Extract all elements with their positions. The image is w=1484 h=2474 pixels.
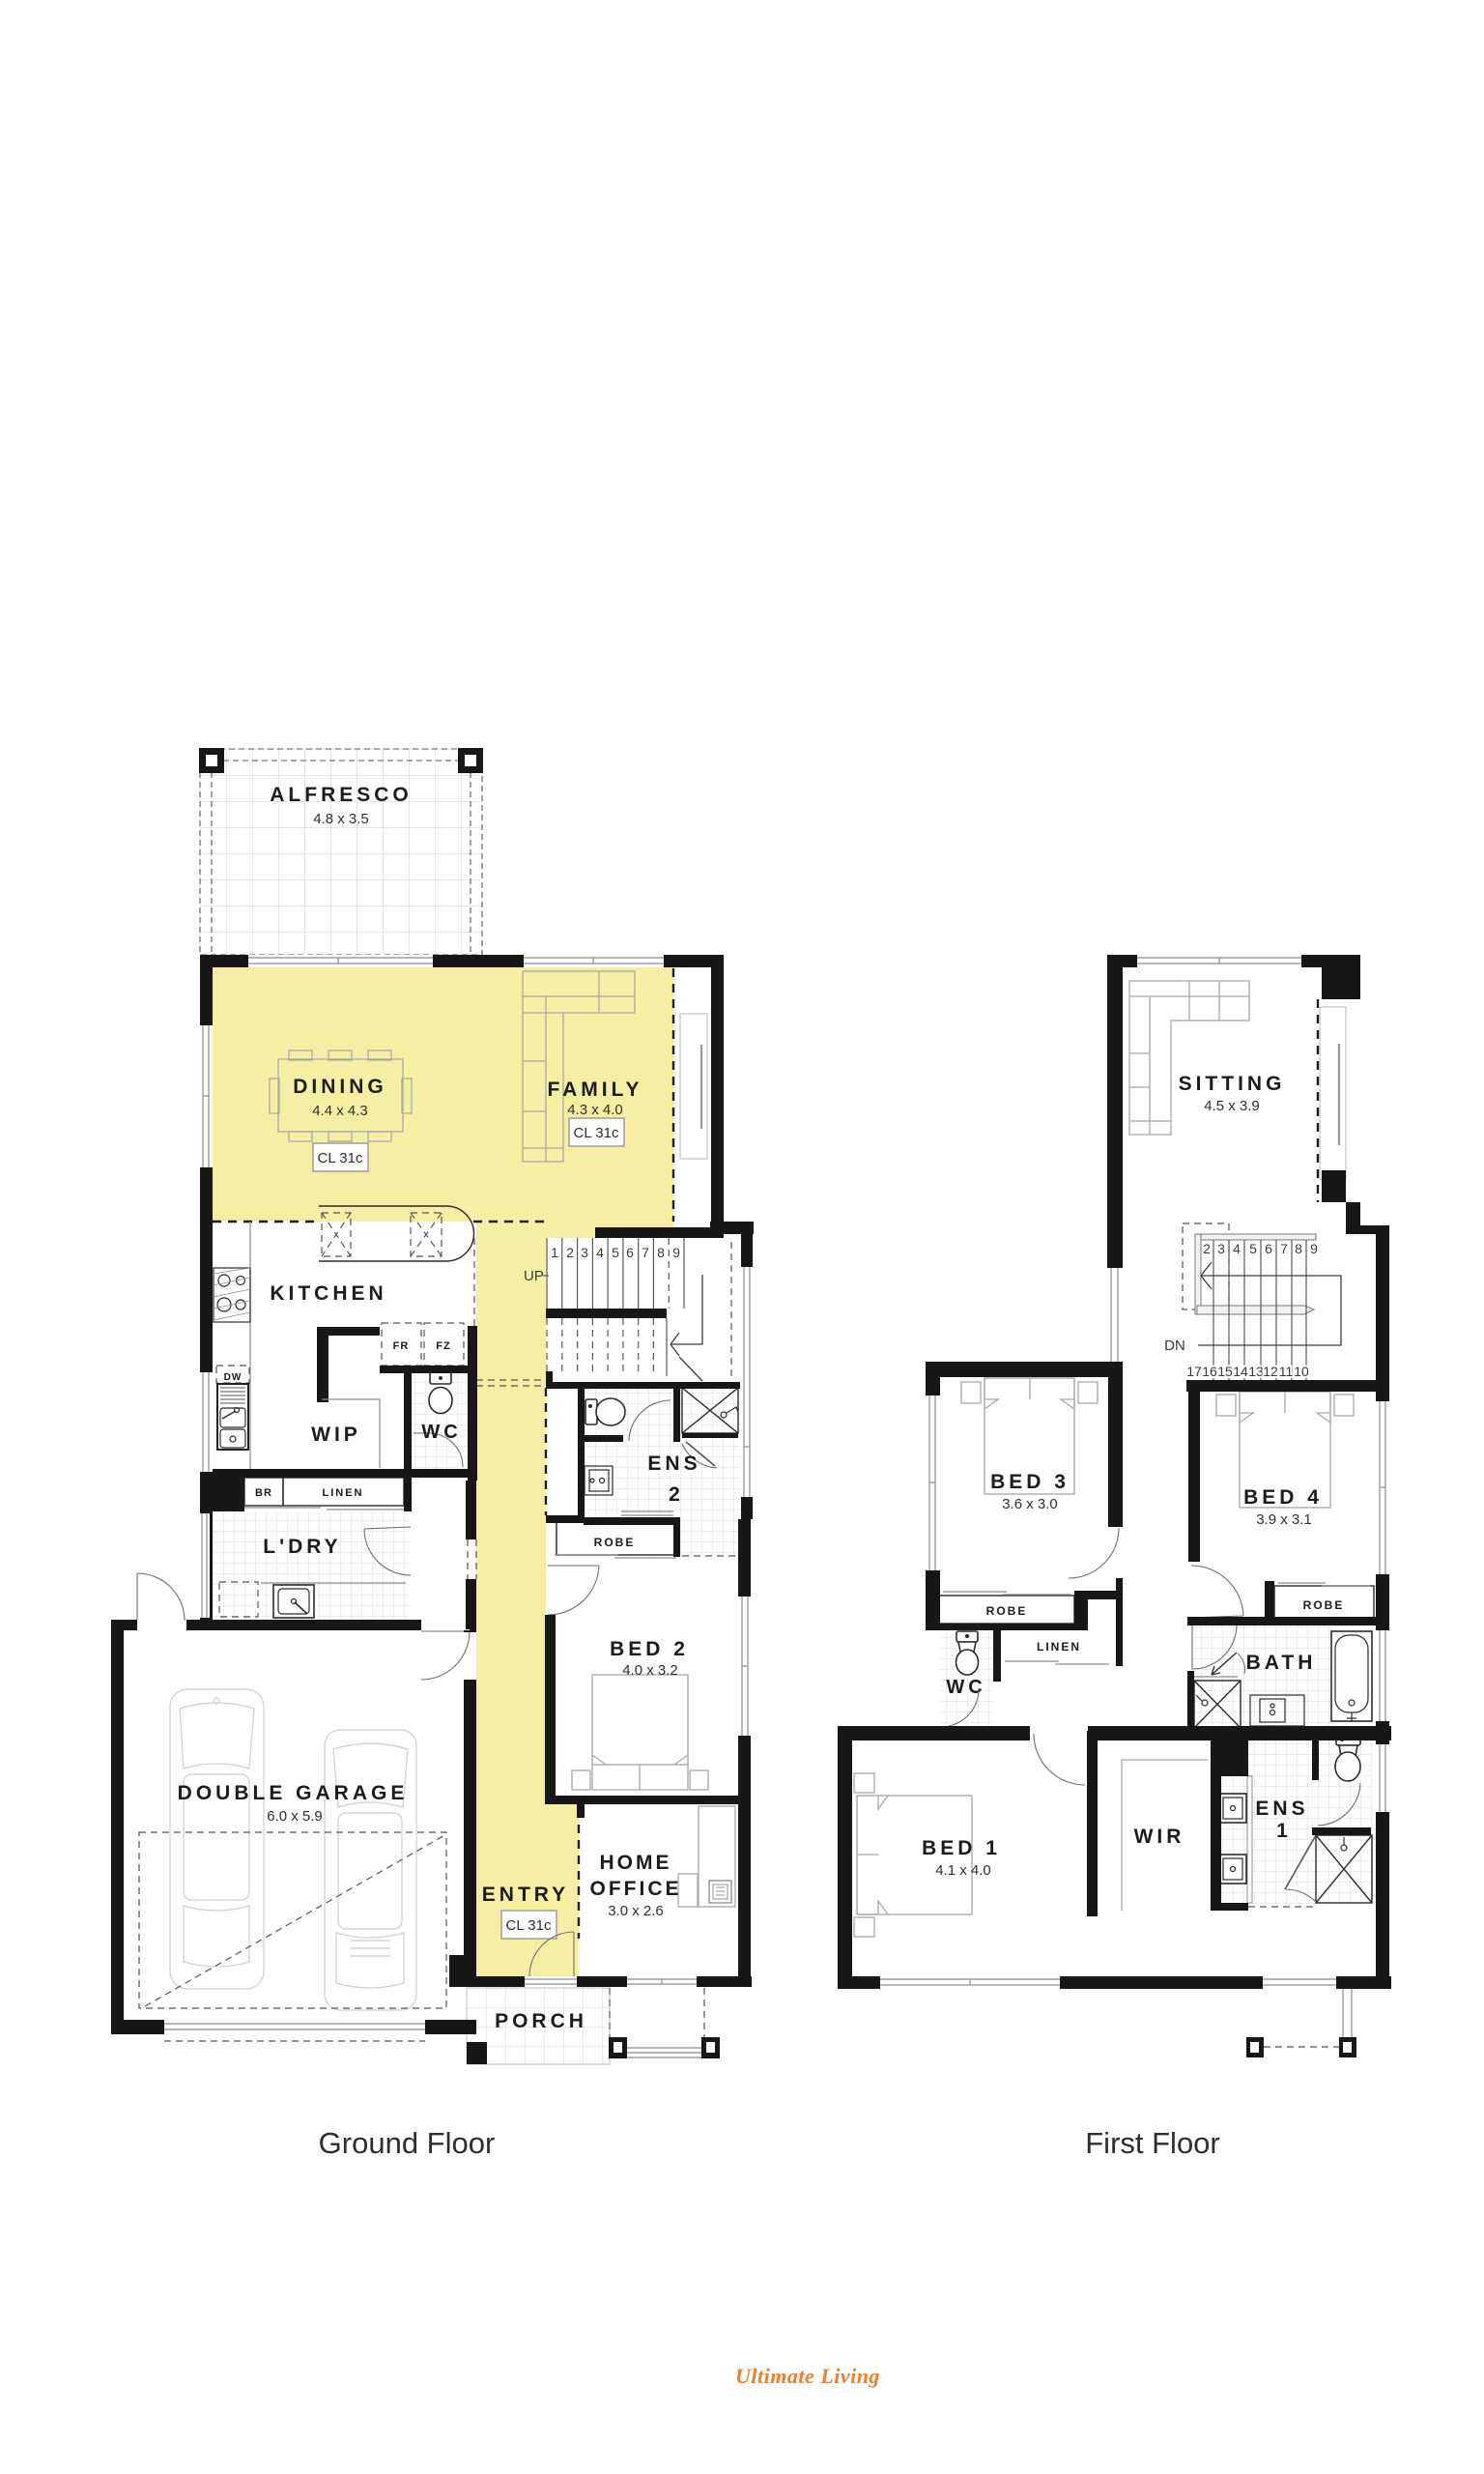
svg-text:ROBE: ROBE: [1303, 1598, 1345, 1612]
svg-text:DN: DN: [1164, 1338, 1185, 1354]
svg-text:8: 8: [657, 1245, 665, 1260]
svg-text:3.0 x 2.6: 3.0 x 2.6: [608, 1903, 664, 1919]
svg-text:BATH: BATH: [1246, 1652, 1317, 1674]
svg-text:4: 4: [1233, 1241, 1241, 1256]
svg-text:4.0 x 3.2: 4.0 x 3.2: [622, 1662, 678, 1679]
svg-text:WC: WC: [421, 1422, 461, 1443]
svg-text:7: 7: [1280, 1241, 1288, 1256]
svg-text:3.9 x 3.1: 3.9 x 3.1: [1256, 1511, 1312, 1528]
svg-text:4.1 x 4.0: 4.1 x 4.0: [935, 1862, 991, 1879]
svg-text:6: 6: [1265, 1241, 1272, 1256]
svg-text:12: 12: [1263, 1364, 1278, 1379]
svg-text:4.3 x 4.0: 4.3 x 4.0: [567, 1102, 623, 1118]
svg-text:7: 7: [642, 1245, 649, 1260]
svg-text:3: 3: [581, 1245, 588, 1260]
svg-text:DINING: DINING: [293, 1076, 387, 1098]
svg-text:SITTING: SITTING: [1179, 1073, 1286, 1095]
svg-text:4: 4: [596, 1245, 604, 1260]
svg-text:PORCH: PORCH: [495, 2010, 587, 2032]
svg-text:2: 2: [566, 1245, 574, 1260]
svg-text:First Floor: First Floor: [1085, 2126, 1220, 2160]
svg-text:10: 10: [1294, 1364, 1309, 1379]
svg-text:WC: WC: [946, 1677, 985, 1698]
svg-text:FAMILY: FAMILY: [547, 1079, 642, 1101]
svg-text:OFFICE: OFFICE: [590, 1878, 682, 1900]
svg-text:CL 31c: CL 31c: [574, 1125, 619, 1141]
svg-text:LINEN: LINEN: [323, 1487, 364, 1499]
svg-text:WIR: WIR: [1134, 1826, 1185, 1848]
svg-text:5: 5: [612, 1245, 619, 1260]
svg-text:HOME: HOME: [600, 1852, 672, 1874]
svg-text:8: 8: [1295, 1241, 1302, 1256]
svg-text:BR: BR: [255, 1487, 272, 1499]
svg-text:KITCHEN: KITCHEN: [270, 1282, 386, 1305]
svg-text:16: 16: [1202, 1364, 1217, 1379]
svg-text:9: 9: [1310, 1241, 1318, 1256]
svg-text:6: 6: [626, 1245, 634, 1260]
svg-text:ALFRESCO: ALFRESCO: [270, 784, 413, 806]
svg-text:ROBE: ROBE: [986, 1604, 1028, 1618]
svg-text:1: 1: [551, 1245, 558, 1260]
svg-text:FZ: FZ: [436, 1340, 450, 1352]
svg-text:CL 31c: CL 31c: [506, 1917, 552, 1934]
svg-text:DW: DW: [224, 1372, 243, 1383]
svg-text:Ground Floor: Ground Floor: [319, 2126, 496, 2160]
svg-text:11: 11: [1279, 1364, 1294, 1379]
svg-text:BED 2: BED 2: [610, 1638, 689, 1660]
svg-text:DOUBLE GARAGE: DOUBLE GARAGE: [178, 1782, 409, 1804]
svg-text:UP: UP: [524, 1268, 544, 1284]
svg-text:3.6 x 3.0: 3.6 x 3.0: [1002, 1496, 1058, 1512]
svg-text:4.8 x 3.5: 4.8 x 3.5: [313, 811, 369, 827]
svg-text:ENS: ENS: [1255, 1798, 1308, 1820]
svg-text:ROBE: ROBE: [594, 1536, 636, 1549]
svg-text:WIP: WIP: [311, 1424, 361, 1446]
svg-text:14: 14: [1233, 1364, 1248, 1379]
svg-text:BED 1: BED 1: [922, 1837, 1001, 1859]
svg-text:17: 17: [1186, 1364, 1202, 1379]
svg-text:ENS: ENS: [647, 1453, 700, 1475]
svg-text:FR: FR: [393, 1340, 410, 1352]
svg-text:15: 15: [1217, 1364, 1233, 1379]
svg-text:13: 13: [1248, 1364, 1264, 1379]
svg-text:BED 3: BED 3: [990, 1471, 1070, 1493]
svg-text:Ultimate Living: Ultimate Living: [735, 2364, 880, 2388]
svg-text:9: 9: [672, 1245, 680, 1260]
svg-text:LINEN: LINEN: [1037, 1640, 1081, 1654]
svg-text:1: 1: [1276, 1820, 1288, 1842]
svg-text:2: 2: [1203, 1241, 1211, 1256]
svg-text:3: 3: [1217, 1241, 1225, 1256]
svg-text:CL 31c: CL 31c: [318, 1150, 363, 1166]
svg-text:ENTRY: ENTRY: [482, 1884, 569, 1906]
svg-text:L'DRY: L'DRY: [263, 1536, 341, 1558]
svg-text:2: 2: [669, 1483, 680, 1506]
svg-text:6.0 x 5.9: 6.0 x 5.9: [267, 1808, 323, 1825]
svg-text:5: 5: [1249, 1241, 1257, 1256]
svg-text:BED 4: BED 4: [1243, 1486, 1323, 1509]
svg-text:4.4 x 4.3: 4.4 x 4.3: [312, 1103, 368, 1119]
svg-text:4.5 x 3.9: 4.5 x 3.9: [1204, 1098, 1260, 1114]
